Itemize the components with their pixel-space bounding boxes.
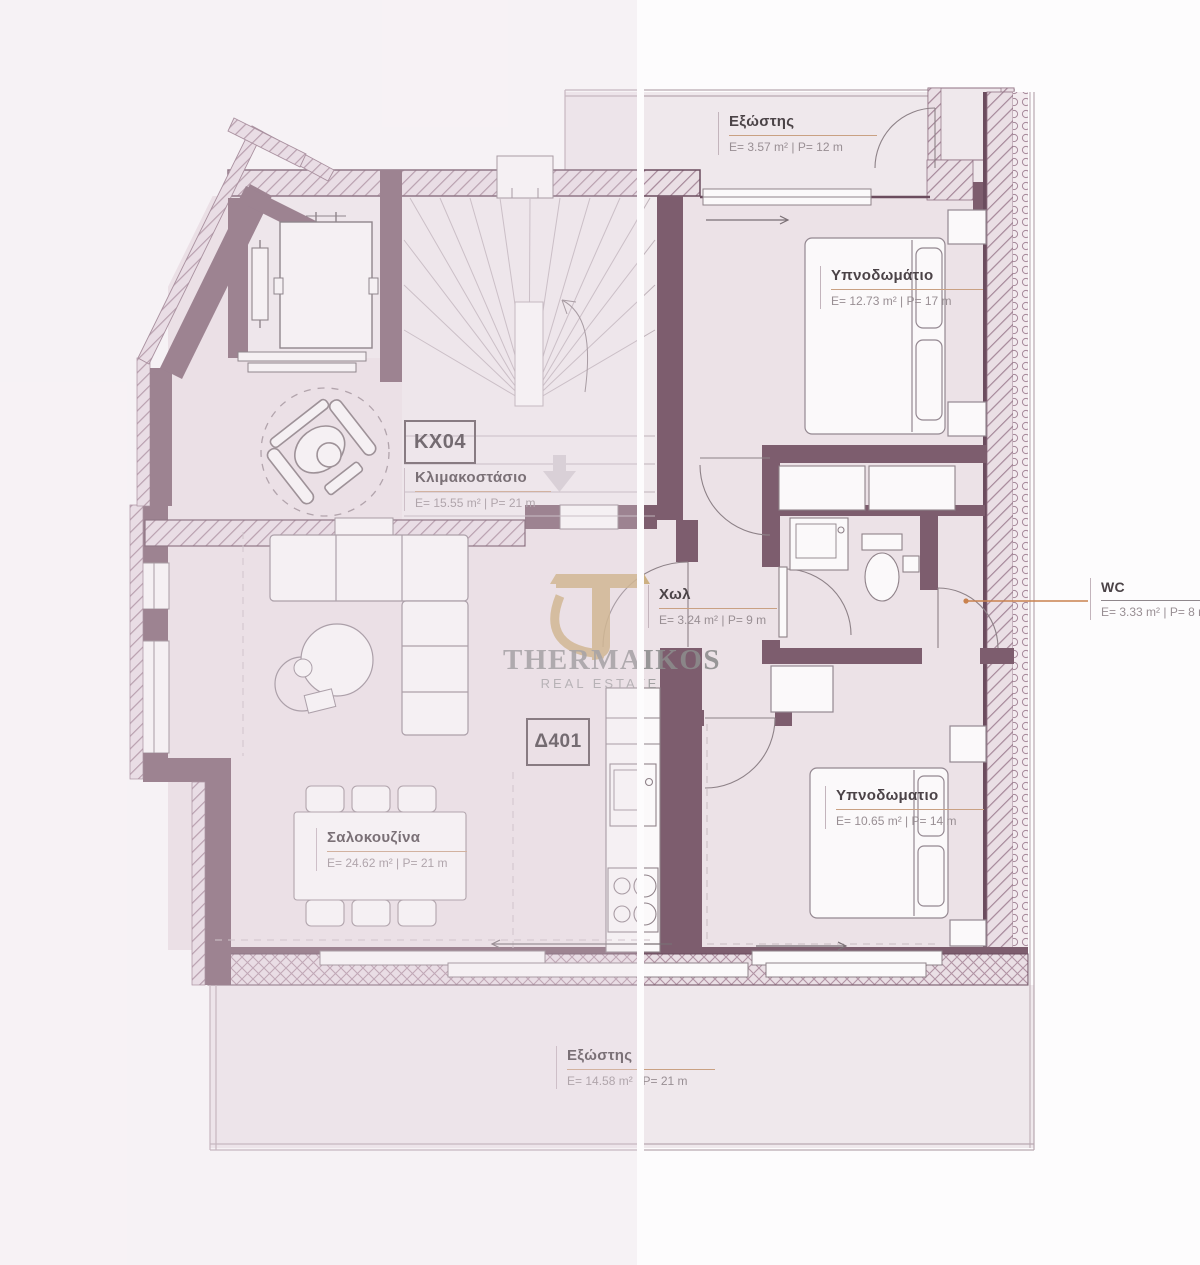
room-label-balcony-bottom: Εξώστης E= 14.58 m² | P= 21 m bbox=[556, 1046, 715, 1089]
label-underline bbox=[729, 135, 877, 136]
room-label-bedroom-bottom: Υπνοδωματιο E= 10.65 m² | P= 14 m bbox=[825, 786, 984, 829]
label-underline bbox=[659, 608, 777, 609]
label-underline bbox=[567, 1069, 715, 1070]
room-label-hall: Χωλ E= 3.24 m² | P= 9 m bbox=[648, 585, 777, 628]
room-dims: E= 3.24 m² | P= 9 m bbox=[659, 613, 777, 627]
room-title: Κλιμακοστάσιο bbox=[415, 469, 551, 486]
label-underline bbox=[831, 289, 983, 290]
room-dims: E= 12.73 m² | P= 17 m bbox=[831, 294, 983, 308]
logo-tagline: REAL ESTATE bbox=[500, 676, 700, 691]
floor-plan-page: Εξώστης E= 3.57 m² | P= 12 m Υπνοδωμάτιο… bbox=[0, 0, 1200, 1265]
room-title: Εξώστης bbox=[567, 1047, 715, 1064]
room-title: Σαλοκουζίνα bbox=[327, 829, 467, 846]
room-title: Εξώστης bbox=[729, 113, 877, 130]
room-label-stairwell: Κλιμακοστάσιο E= 15.55 m² | P= 21 m bbox=[404, 468, 551, 511]
label-underline bbox=[415, 491, 551, 492]
room-dims: E= 14.58 m² | P= 21 m bbox=[567, 1074, 715, 1088]
apartment-code-box: Δ401 bbox=[526, 718, 590, 766]
room-dims: E= 15.55 m² | P= 21 m bbox=[415, 496, 551, 510]
logo-wordmark: THERMAIKOS bbox=[500, 644, 724, 677]
kitchen-counter bbox=[606, 688, 660, 952]
label-underline bbox=[836, 809, 984, 810]
room-dims: E= 10.65 m² | P= 14 m bbox=[836, 814, 984, 828]
room-label-living: Σαλοκουζίνα E= 24.62 m² | P= 21 m bbox=[316, 828, 467, 871]
room-label-bedroom-top: Υπνοδωμάτιο E= 12.73 m² | P= 17 m bbox=[820, 266, 983, 309]
room-dims: E= 3.57 m² | P= 12 m bbox=[729, 140, 877, 154]
room-dims: E= 3.33 m² | P= 8 m bbox=[1101, 605, 1200, 619]
label-underline bbox=[1101, 600, 1200, 601]
room-label-wc: WC E= 3.33 m² | P= 8 m bbox=[1090, 578, 1200, 620]
room-title: WC bbox=[1101, 579, 1200, 595]
room-title: Χωλ bbox=[659, 586, 777, 603]
stairwell-code-box: KX04 bbox=[404, 420, 476, 464]
room-label-balcony-top: Εξώστης E= 3.57 m² | P= 12 m bbox=[718, 112, 877, 155]
label-underline bbox=[327, 851, 467, 852]
stair-door-gap bbox=[560, 505, 618, 529]
room-dims: E= 24.62 m² | P= 21 m bbox=[327, 856, 467, 870]
room-title: Υπνοδωματιο bbox=[836, 787, 984, 804]
room-title: Υπνοδωμάτιο bbox=[831, 267, 983, 284]
